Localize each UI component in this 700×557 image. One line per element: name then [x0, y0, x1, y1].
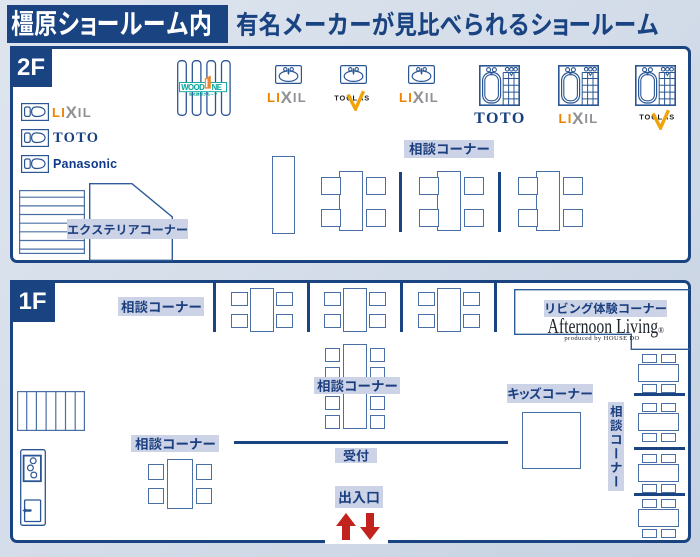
svg-text:NE: NE — [212, 83, 222, 92]
svg-text:WOOD: WOOD — [181, 83, 205, 92]
